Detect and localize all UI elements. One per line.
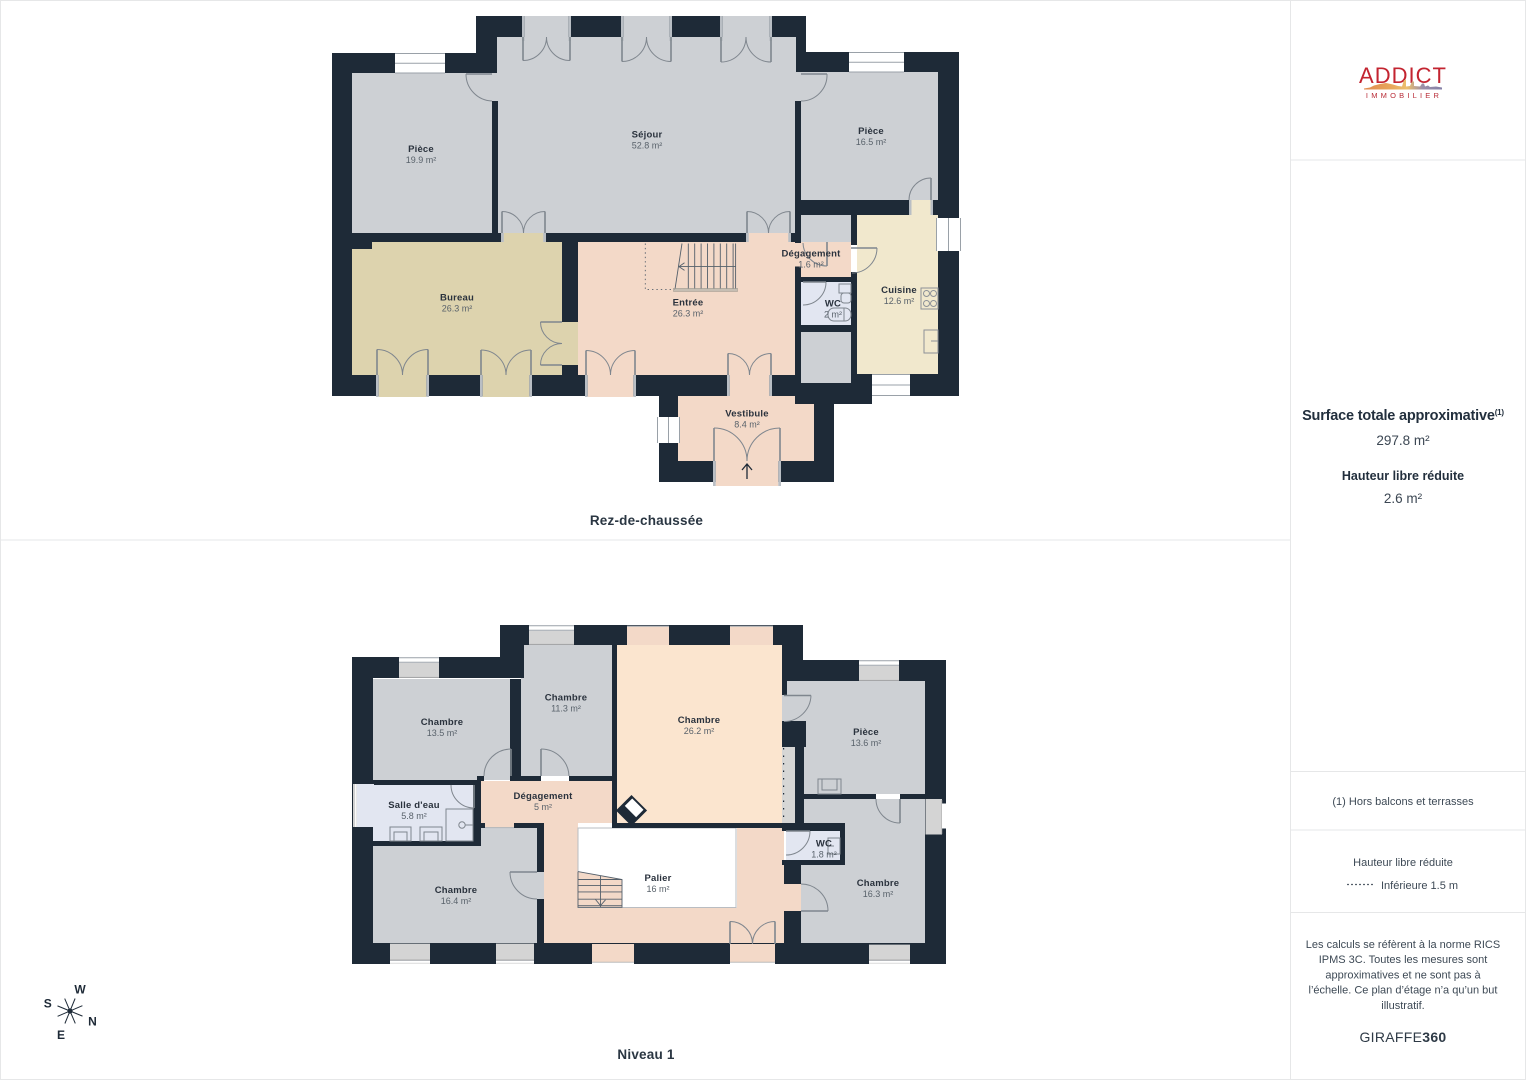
svg-text:IMMOBILIER: IMMOBILIER (1366, 91, 1442, 100)
svg-text:16.5 m²: 16.5 m² (856, 137, 887, 147)
svg-text:Pièce: Pièce (408, 144, 434, 155)
svg-text:IPMS 3C. Toutes les mesures so: IPMS 3C. Toutes les mesures sont (1319, 954, 1488, 966)
svg-text:1.8 m²: 1.8 m² (811, 850, 837, 860)
svg-text:Salle d'eau: Salle d'eau (388, 800, 439, 811)
svg-text:13.6 m²: 13.6 m² (851, 738, 882, 748)
svg-text:26.3 m²: 26.3 m² (442, 304, 473, 314)
svg-text:Séjour: Séjour (632, 130, 663, 141)
svg-text:16 m²: 16 m² (646, 884, 669, 894)
svg-text:5 m²: 5 m² (534, 802, 552, 812)
svg-text:WC: WC (816, 839, 832, 850)
svg-text:297.8 m²: 297.8 m² (1376, 433, 1430, 448)
svg-text:Palier: Palier (644, 873, 671, 884)
svg-text:Les calculs se réfèrent à la n: Les calculs se réfèrent à la norme RICS (1306, 939, 1500, 951)
svg-text:Niveau 1: Niveau 1 (617, 1047, 674, 1062)
svg-text:W: W (74, 983, 86, 997)
svg-text:26.3 m²: 26.3 m² (673, 309, 704, 319)
svg-text:Dégagement: Dégagement (781, 249, 841, 260)
svg-text:2 m²: 2 m² (824, 310, 842, 320)
svg-text:E: E (57, 1028, 65, 1042)
svg-text:Hauteur libre réduite: Hauteur libre réduite (1353, 857, 1453, 869)
svg-text:WC: WC (825, 299, 841, 310)
svg-text:19.9 m²: 19.9 m² (406, 155, 437, 165)
svg-text:13.5 m²: 13.5 m² (427, 728, 458, 738)
svg-text:Chambre: Chambre (545, 693, 588, 704)
svg-text:Hauteur libre réduite: Hauteur libre réduite (1342, 469, 1464, 483)
svg-text:11.3 m²: 11.3 m² (551, 704, 581, 714)
svg-text:N: N (88, 1015, 97, 1029)
svg-text:S: S (44, 997, 52, 1011)
svg-text:Pièce: Pièce (853, 727, 879, 738)
svg-text:Inférieure 1.5 m: Inférieure 1.5 m (1381, 880, 1458, 892)
svg-text:illustratif.: illustratif. (1381, 1000, 1424, 1012)
svg-text:GIRAFFE360: GIRAFFE360 (1359, 1029, 1446, 1045)
svg-text:5.8 m²: 5.8 m² (401, 811, 427, 821)
svg-text:Cuisine: Cuisine (881, 285, 917, 296)
svg-text:(1) Hors balcons et terrasses: (1) Hors balcons et terrasses (1332, 796, 1474, 808)
svg-text:Surface totale approximative(1: Surface totale approximative(1) (1302, 408, 1504, 424)
svg-text:Dégagement: Dégagement (513, 791, 573, 802)
svg-text:Chambre: Chambre (421, 717, 464, 728)
svg-text:Chambre: Chambre (678, 715, 721, 726)
svg-text:Vestibule: Vestibule (725, 409, 769, 420)
svg-text:Chambre: Chambre (857, 878, 900, 889)
svg-text:approximatives et ne sont pas: approximatives et ne sont pas à (1325, 969, 1481, 981)
svg-text:8.4 m²: 8.4 m² (734, 420, 760, 430)
svg-text:1.6 m²: 1.6 m² (798, 260, 824, 270)
svg-text:12.6 m²: 12.6 m² (884, 296, 915, 306)
svg-text:Bureau: Bureau (440, 293, 474, 304)
svg-text:16.4 m²: 16.4 m² (441, 896, 472, 906)
svg-text:16.3 m²: 16.3 m² (863, 889, 894, 899)
svg-text:Entrée: Entrée (673, 298, 704, 309)
svg-text:l’échelle. Ce plan d’étage n’a: l’échelle. Ce plan d’étage n’a qu’un but (1309, 985, 1498, 997)
svg-text:Rez-de-chaussée: Rez-de-chaussée (590, 513, 704, 528)
svg-text:52.8 m²: 52.8 m² (632, 141, 663, 151)
svg-text:Pièce: Pièce (858, 126, 884, 137)
svg-text:2.6 m²: 2.6 m² (1384, 491, 1423, 506)
svg-text:Chambre: Chambre (435, 885, 478, 896)
svg-text:26.2 m²: 26.2 m² (684, 726, 715, 736)
